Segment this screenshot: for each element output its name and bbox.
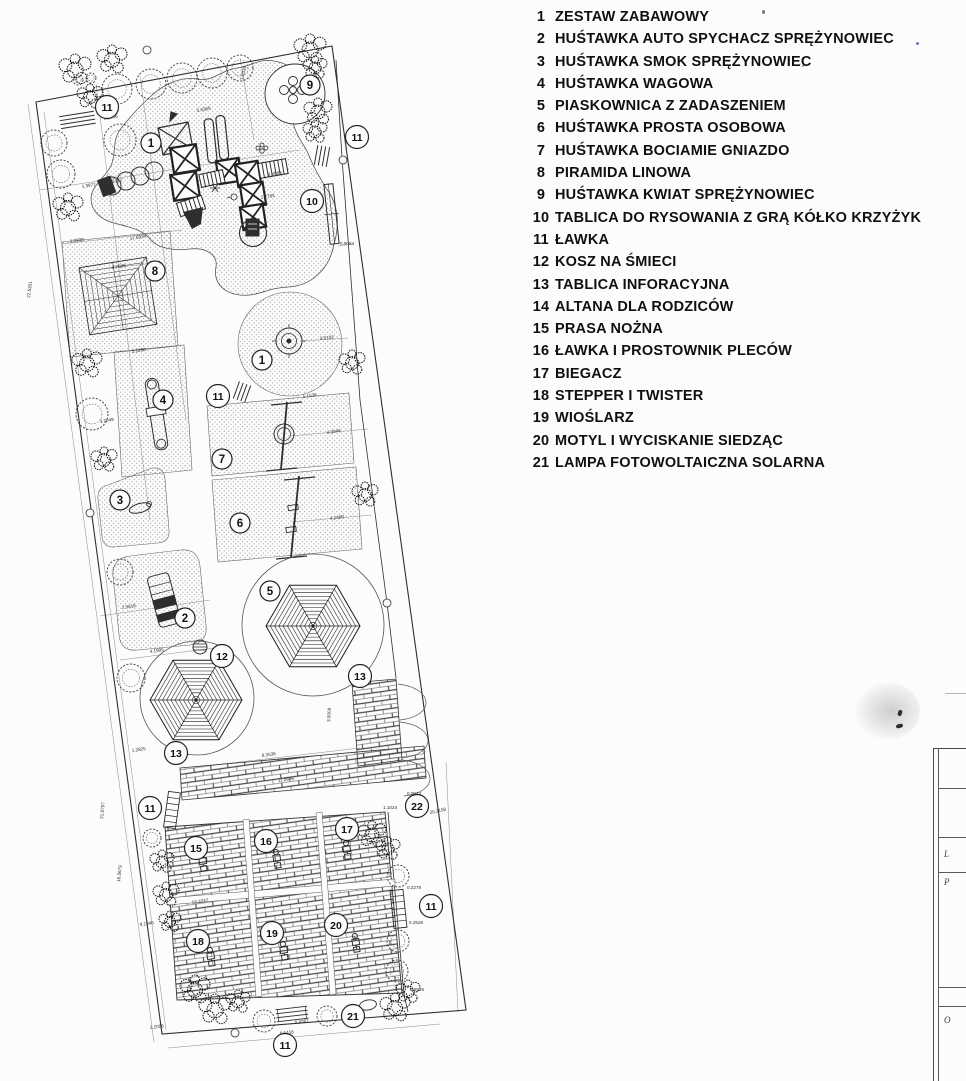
dimension-label: 1.2825	[131, 746, 146, 753]
legend-item-label: HUŚTAWKA KWIAT SPRĘŻYNOWIEC	[555, 184, 815, 206]
plan-marker-18: 18	[187, 930, 210, 953]
legend-item-label: HUŚTAWKA PROSTA OSOBOWA	[555, 117, 786, 139]
plan-marker-20: 20	[325, 914, 348, 937]
svg-text:12: 12	[216, 651, 228, 663]
legend-item-label: TABLICA INFORACYJNA	[555, 274, 730, 296]
legend-item-17: 17BIEGACZ	[528, 363, 960, 385]
survey-point	[383, 599, 391, 607]
legend-item-9: 9HUŚTAWKA KWIAT SPRĘŻYNOWIEC	[528, 184, 960, 206]
legend-item-number: 11	[528, 229, 554, 251]
svg-text:13: 13	[354, 671, 366, 683]
legend-item-number: 20	[528, 430, 554, 452]
legend-item-19: 19WIOŚLARZ	[528, 407, 960, 429]
svg-text:18: 18	[192, 936, 204, 948]
legend-item-12: 12KOSZ NA ŚMIECI	[528, 251, 960, 273]
plan-marker-11: 11	[139, 797, 162, 820]
tree	[41, 130, 67, 156]
svg-text:11: 11	[279, 1040, 290, 1052]
plan-marker-3: 3	[110, 490, 130, 510]
plan-marker-16: 16	[255, 830, 278, 853]
svg-text:11: 11	[101, 102, 112, 114]
legend-item-10: 10TABLICA DO RYSOWANIA Z GRĄ KÓŁKO KRZYŻ…	[528, 207, 960, 229]
plan-marker-11: 11	[274, 1034, 297, 1057]
legend-item-number: 19	[528, 407, 554, 429]
legend-item-16: 16ŁAWKA I PROSTOWNIK PLECÓW	[528, 340, 960, 362]
dimension-label: 0.9084	[340, 241, 354, 246]
legend-item-8: 8PIRAMIDA LINOWA	[528, 162, 960, 184]
tree	[253, 1010, 275, 1032]
plan-marker-12: 12	[211, 645, 234, 668]
legend-item-number: 3	[528, 51, 554, 73]
legend: 1ZESTAW ZABAWOWY2HUŚTAWKA AUTO SPYCHACZ …	[528, 6, 960, 474]
legend-item-number: 17	[528, 363, 554, 385]
legend-item-label: ALTANA DLA RODZICÓW	[555, 296, 734, 318]
title-block-row-divider	[938, 1006, 966, 1007]
svg-text:9: 9	[307, 80, 313, 92]
dimension-label: 8.3536	[261, 751, 276, 758]
plan-marker-8: 8	[145, 261, 165, 281]
plan-marker-13: 13	[349, 665, 372, 688]
svg-text:13: 13	[170, 748, 182, 760]
plan-marker-10: 10	[301, 190, 324, 213]
legend-item-4: 4HUŚTAWKA WAGOWA	[528, 73, 960, 95]
plan-marker-4: 4	[153, 390, 173, 410]
plan-marker-11: 11	[207, 385, 230, 408]
dimension-label: 1.1024	[383, 805, 397, 810]
title-block-label: L	[944, 849, 949, 859]
legend-item-7: 7HUŚTAWKA BOCIAMIE GNIAZDO	[528, 140, 960, 162]
plan-marker-11: 11	[420, 895, 443, 918]
tree	[317, 1006, 337, 1026]
plan-marker-1: 1	[141, 133, 161, 153]
title-block: L P O	[933, 748, 966, 1081]
legend-item-label: WIOŚLARZ	[555, 407, 634, 429]
bush	[303, 120, 327, 142]
svg-text:11: 11	[425, 901, 436, 913]
survey-point	[143, 46, 151, 54]
legend-item-number: 6	[528, 117, 554, 139]
svg-text:20: 20	[330, 920, 342, 932]
legend-item-label: ŁAWKA	[555, 229, 609, 251]
plan-marker-9: 9	[300, 75, 320, 95]
title-block-row-divider	[938, 872, 966, 873]
legend-item-label: HUŚTAWKA WAGOWA	[555, 73, 713, 95]
bush	[294, 34, 326, 64]
dimension-label: 0.4387	[295, 1018, 310, 1025]
legend-item-label: MOTYL I WYCISKANIE SIEDZĄC	[555, 430, 783, 452]
tree	[76, 398, 108, 430]
plan-marker-1: 1	[252, 350, 272, 370]
dimension-label: 1.2056	[150, 1023, 165, 1030]
bench-left-lower	[164, 791, 181, 828]
survey-point	[86, 509, 94, 517]
plan-marker-7: 7	[212, 449, 232, 469]
legend-item-label: PIASKOWNICA Z ZADASZENIEM	[555, 95, 786, 117]
plan-marker-11: 11	[346, 126, 369, 149]
dimension-label: 22.5351	[26, 281, 33, 299]
legend-item-11: 11ŁAWKA	[528, 229, 960, 251]
tree	[117, 664, 145, 692]
legend-item-label: TABLICA DO RYSOWANIA Z GRĄ KÓŁKO KRZYŻYK	[555, 207, 921, 229]
legend-item-number: 18	[528, 385, 554, 407]
dimension-label: 3.5009	[326, 707, 332, 722]
plan-marker-6: 6	[230, 513, 250, 533]
svg-text:16: 16	[260, 836, 272, 848]
legend-item-label: PRASA NOŻNA	[555, 318, 663, 340]
dimension-label: 3.2049	[99, 417, 114, 424]
legend-item-number: 7	[528, 140, 554, 162]
legend-item-14: 14ALTANA DLA RODZICÓW	[528, 296, 960, 318]
dimension-label: 0.2278	[407, 885, 421, 890]
legend-item-label: HUŚTAWKA AUTO SPYCHACZ SPRĘŻYNOWIEC	[555, 28, 894, 50]
legend-item-label: HUŚTAWKA SMOK SPRĘŻYNOWIEC	[555, 51, 812, 73]
legend-item-6: 6HUŚTAWKA PROSTA OSOBOWA	[528, 117, 960, 139]
svg-text:21: 21	[347, 1011, 359, 1023]
bush	[339, 350, 365, 374]
title-block-label: P	[944, 877, 950, 887]
x-tower	[170, 144, 200, 174]
plan-marker-15: 15	[185, 837, 208, 860]
zone-dragon-rider	[98, 468, 169, 547]
legend-item-label: LAMPA FOTOWOLTAICZNA SOLARNA	[555, 452, 825, 474]
svg-text:10: 10	[306, 196, 318, 208]
bush	[59, 54, 91, 84]
svg-text:2: 2	[182, 613, 188, 625]
title-block-row-divider	[938, 987, 966, 988]
dimension-label: 0.2528	[409, 920, 423, 925]
zone-carousel	[238, 292, 342, 396]
bench-mid-left	[233, 381, 250, 402]
bush	[53, 193, 83, 221]
bush	[97, 45, 127, 73]
svg-text:11: 11	[144, 803, 155, 815]
zone-rope-pyramid	[62, 231, 178, 357]
svg-text:17: 17	[341, 824, 353, 836]
dimension-label: 20.2158	[429, 807, 447, 815]
svg-text:19: 19	[266, 928, 278, 940]
site-plan-drawing: 0.29061.93385.03691.397715.61728.59692.7…	[0, 0, 500, 1080]
legend-item-number: 2	[528, 28, 554, 50]
plan-marker-5: 5	[260, 581, 280, 601]
path-vertical	[352, 679, 402, 766]
scan-smudge-artifact	[856, 682, 920, 740]
title-block-label: O	[944, 1015, 951, 1025]
legend-item-number: 8	[528, 162, 554, 184]
legend-item-number: 9	[528, 184, 554, 206]
svg-text:6: 6	[237, 518, 243, 530]
legend-item-number: 16	[528, 340, 554, 362]
bush	[91, 447, 117, 471]
legend-item-number: 21	[528, 452, 554, 474]
legend-item-label: ZESTAW ZABAWOWY	[555, 6, 709, 28]
legend-item-number: 5	[528, 95, 554, 117]
plan-marker-2: 2	[175, 608, 195, 628]
plan-marker-21: 21	[342, 1005, 365, 1028]
dimension-label: 0.6526	[410, 987, 424, 992]
title-block-row-divider	[938, 788, 966, 789]
svg-text:4: 4	[160, 395, 167, 407]
plan-marker-11: 11	[96, 96, 119, 119]
survey-point	[339, 156, 347, 164]
scan-line-artifact	[945, 693, 966, 694]
legend-item-number: 1	[528, 6, 554, 28]
tree	[47, 160, 75, 188]
svg-text:22: 22	[411, 801, 423, 813]
svg-text:1: 1	[148, 138, 155, 150]
scan-speck	[916, 42, 919, 45]
legend-item-3: 3HUŚTAWKA SMOK SPRĘŻYNOWIEC	[528, 51, 960, 73]
svg-text:1: 1	[259, 355, 266, 367]
legend-item-21: 21LAMPA FOTOWOLTAICZNA SOLARNA	[528, 452, 960, 474]
plan-marker-17: 17	[336, 818, 359, 841]
svg-text:5: 5	[267, 586, 274, 598]
legend-item-label: KOSZ NA ŚMIECI	[555, 251, 677, 273]
scan-speck	[802, 65, 804, 67]
svg-text:3: 3	[117, 495, 123, 507]
svg-text:15: 15	[190, 843, 202, 855]
svg-text:7: 7	[219, 454, 225, 466]
legend-item-label: BIEGACZ	[555, 363, 622, 385]
legend-item-20: 20MOTYL I WYCISKANIE SIEDZĄC	[528, 430, 960, 452]
legend-item-5: 5PIASKOWNICA Z ZADASZENIEM	[528, 95, 960, 117]
dimension-label: 21.8797	[99, 802, 106, 819]
legend-item-label: HUŚTAWKA BOCIAMIE GNIAZDO	[555, 140, 790, 162]
legend-item-2: 2HUŚTAWKA AUTO SPYCHACZ SPRĘŻYNOWIEC	[528, 28, 960, 50]
tree	[136, 69, 166, 99]
legend-item-15: 15PRASA NOŻNA	[528, 318, 960, 340]
plan-marker-22: 22	[406, 795, 429, 818]
tree	[143, 829, 161, 847]
legend-item-label: STEPPER I TWISTER	[555, 385, 703, 407]
legend-item-18: 18STEPPER I TWISTER	[528, 385, 960, 407]
plan-marker-13: 13	[165, 742, 188, 765]
survey-point	[231, 1029, 239, 1037]
x-tower	[170, 171, 200, 201]
bench-top-left	[59, 111, 95, 128]
legend-item-number: 15	[528, 318, 554, 340]
scan-speck	[762, 10, 765, 14]
svg-text:11: 11	[351, 132, 362, 144]
gazebo-roof	[150, 660, 242, 740]
title-block-row-divider	[938, 837, 966, 838]
legend-item-label: PIRAMIDA LINOWA	[555, 162, 691, 184]
bush	[380, 993, 410, 1021]
legend-item-number: 14	[528, 296, 554, 318]
legend-item-number: 12	[528, 251, 554, 273]
legend-item-label: ŁAWKA I PROSTOWNIK PLECÓW	[555, 340, 792, 362]
legend-item-1: 1ZESTAW ZABAWOWY	[528, 6, 960, 28]
legend-item-number: 10	[528, 207, 554, 229]
plan-marker-19: 19	[261, 922, 284, 945]
legend-item-13: 13TABLICA INFORACYJNA	[528, 274, 960, 296]
svg-text:8: 8	[152, 266, 159, 278]
bench-top-right	[314, 145, 329, 167]
title-block-inner-border	[938, 749, 939, 1081]
svg-text:11: 11	[212, 391, 223, 403]
scanned-playground-plan-page: 0.29061.93385.03691.397715.61728.59692.7…	[0, 0, 966, 1080]
sandbox-roof	[266, 585, 360, 666]
legend-item-number: 13	[528, 274, 554, 296]
dimension-label: 16.5679	[116, 865, 123, 882]
legend-item-number: 4	[528, 73, 554, 95]
